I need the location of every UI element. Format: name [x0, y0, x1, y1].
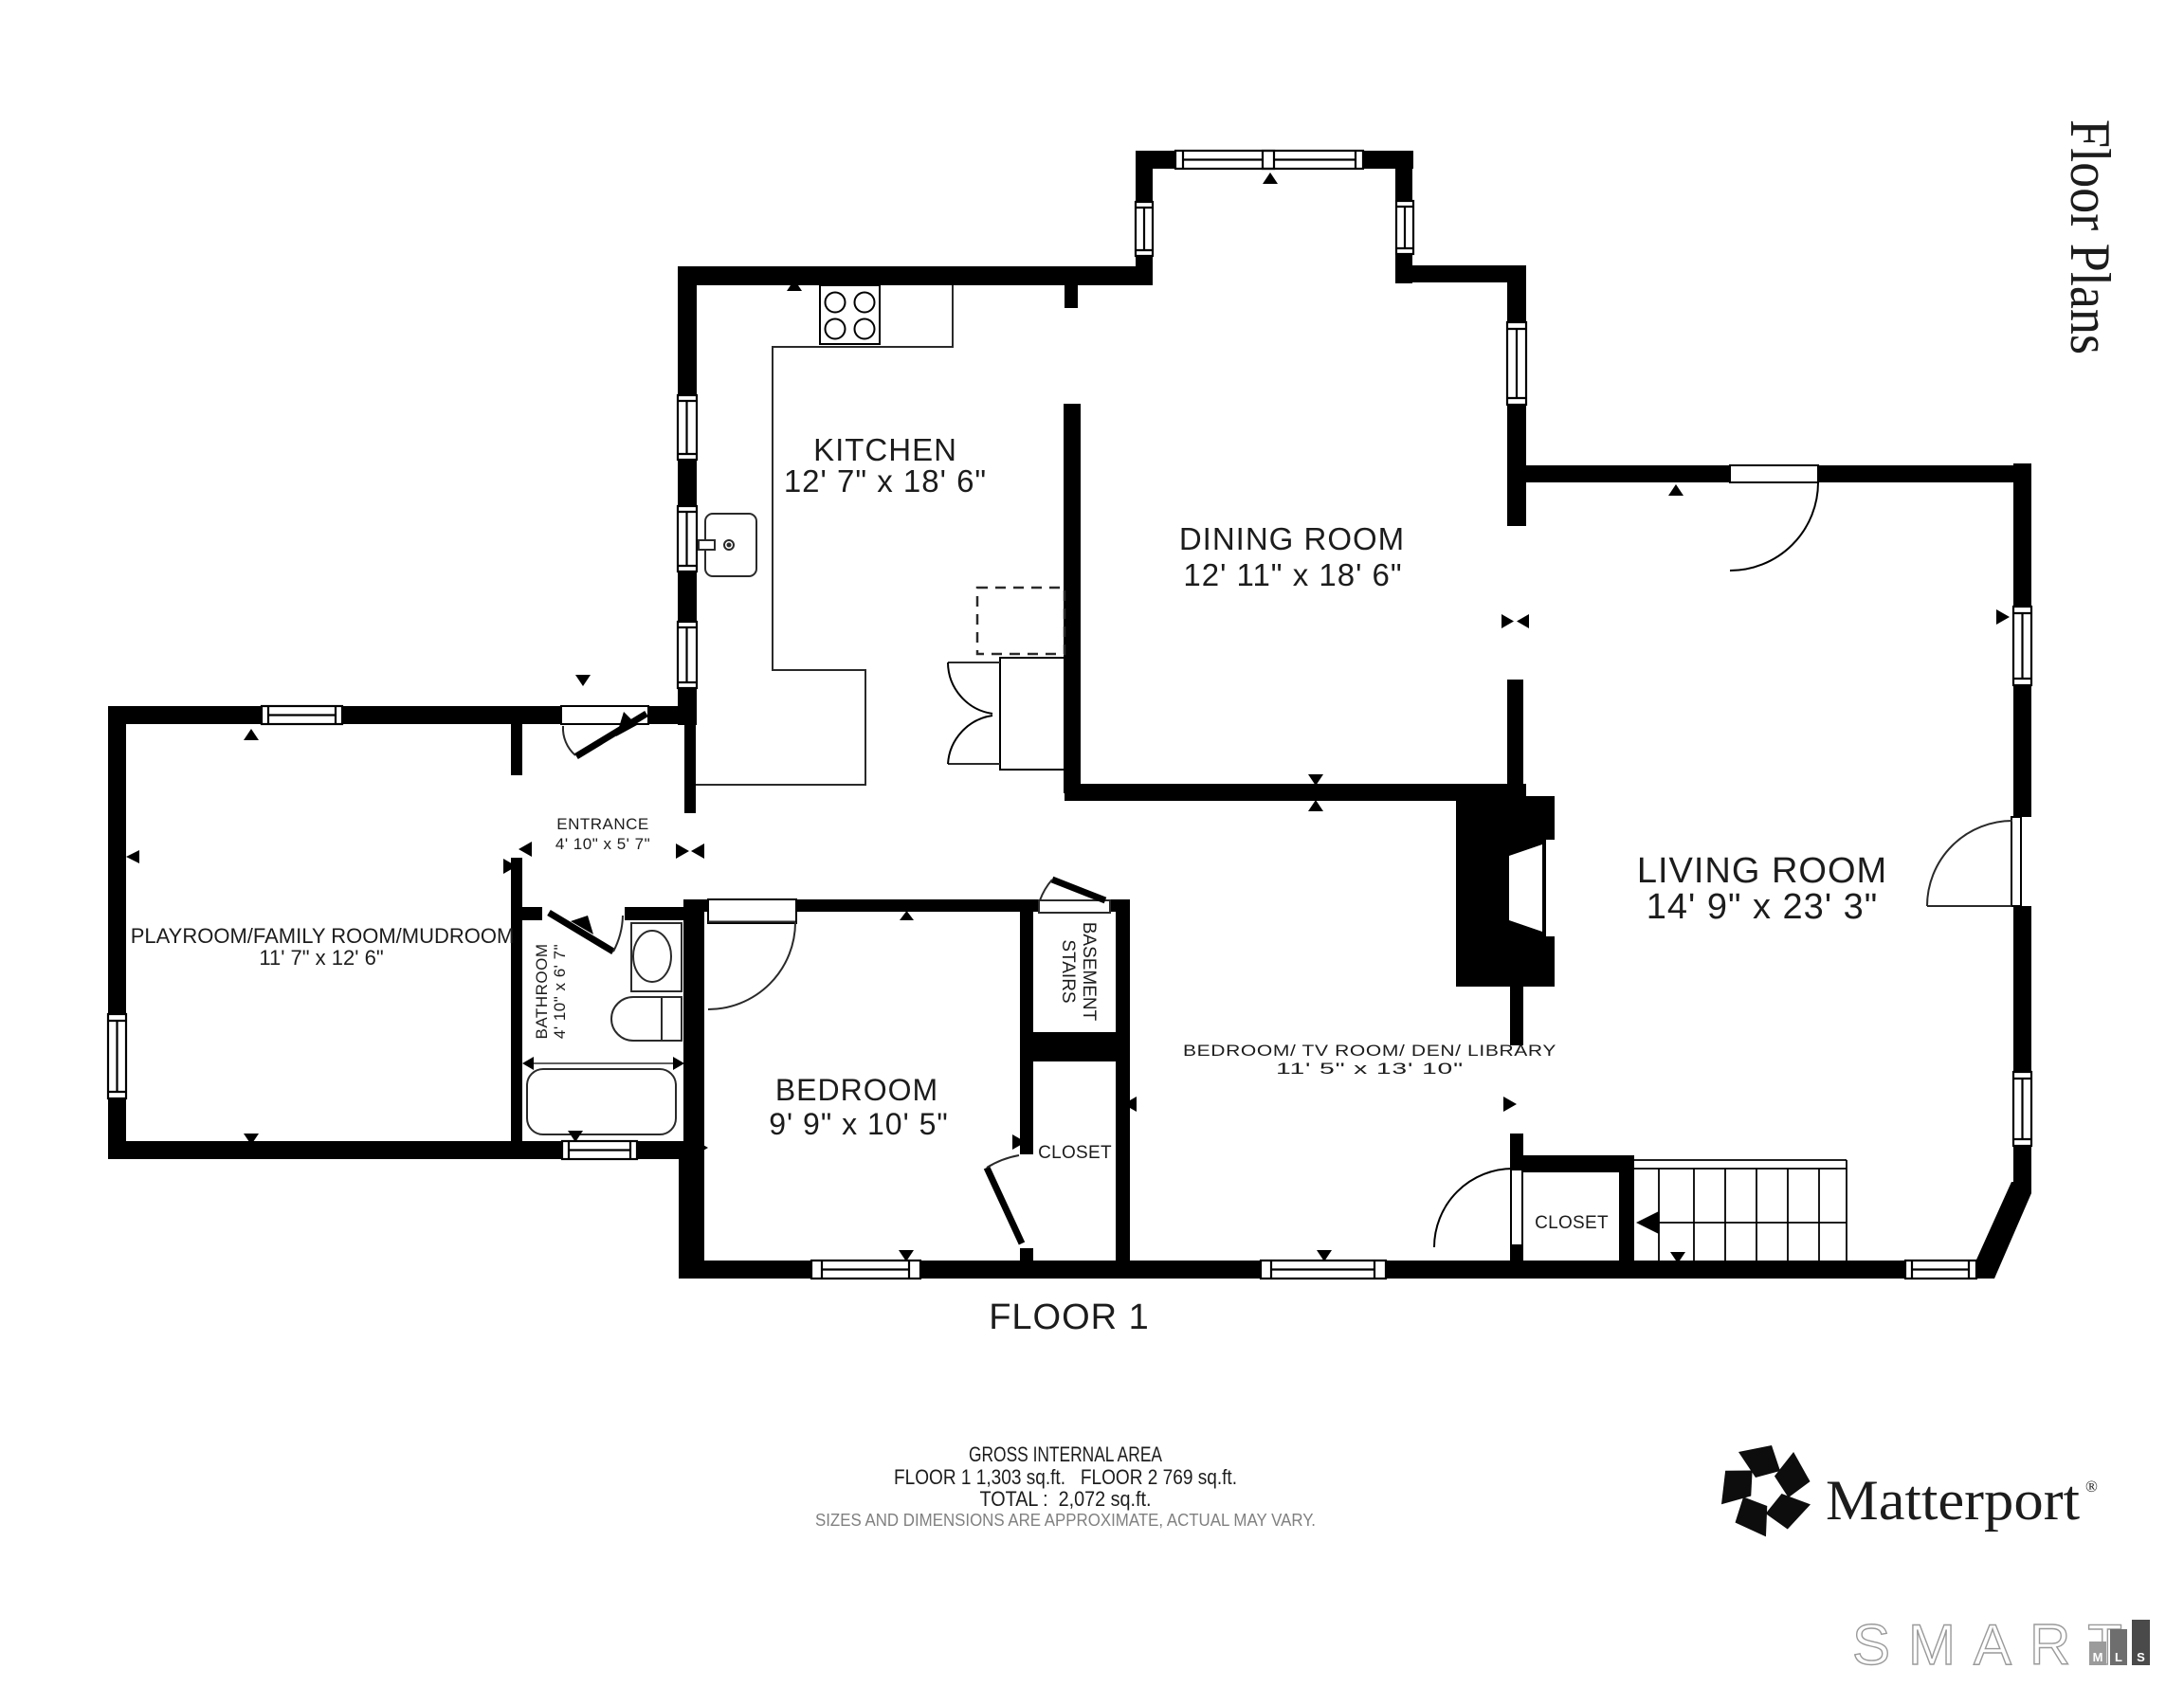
- svg-text:M: M: [2093, 1650, 2103, 1664]
- svg-text:9' 9" x 10' 5": 9' 9" x 10' 5": [769, 1107, 948, 1141]
- svg-text:4' 10" x 5' 7": 4' 10" x 5' 7": [555, 835, 650, 853]
- svg-text:®: ®: [2085, 1478, 2098, 1496]
- svg-text:BEDROOM/ TV ROOM/ DEN/ LIBRARY: BEDROOM/ TV ROOM/ DEN/ LIBRARY: [1183, 1042, 1556, 1060]
- svg-text:12' 7" x 18' 6": 12' 7" x 18' 6": [784, 463, 987, 499]
- svg-text:FLOOR 1 1,303 sq.ft. FLOOR 2: FLOOR 1 1,303 sq.ft. FLOOR 2 769 sq.ft.: [894, 1465, 1237, 1489]
- svg-text:FLOOR 1: FLOOR 1: [989, 1297, 1150, 1337]
- svg-text:S: S: [2137, 1650, 2145, 1664]
- svg-text:Floor Plans: Floor Plans: [2059, 119, 2121, 354]
- svg-text:ENTRANCE: ENTRANCE: [556, 815, 649, 833]
- svg-text:DINING ROOM: DINING ROOM: [1179, 521, 1405, 556]
- svg-text:CLOSET: CLOSET: [1535, 1213, 1609, 1233]
- svg-text:12' 11" x 18' 6": 12' 11" x 18' 6": [1183, 557, 1402, 592]
- svg-text:CLOSET: CLOSET: [1038, 1143, 1112, 1163]
- svg-text:KITCHEN: KITCHEN: [813, 432, 957, 467]
- svg-text:Matterport: Matterport: [1826, 1469, 2080, 1532]
- svg-text:PLAYROOM/FAMILY ROOM/MUDROOM: PLAYROOM/FAMILY ROOM/MUDROOM: [131, 924, 515, 948]
- svg-text:11' 7" x 12' 6": 11' 7" x 12' 6": [259, 946, 383, 970]
- svg-text:14' 9" x 23' 3": 14' 9" x 23' 3": [1647, 887, 1879, 927]
- svg-text:SIZES AND DIMENSIONS ARE APPRO: SIZES AND DIMENSIONS ARE APPROXIMATE, AC…: [815, 1510, 1316, 1530]
- svg-text:11' 5" x 13' 10": 11' 5" x 13' 10": [1276, 1060, 1464, 1078]
- svg-text:LIVING ROOM: LIVING ROOM: [1637, 851, 1887, 891]
- svg-text:BEDROOM: BEDROOM: [775, 1073, 938, 1107]
- svg-text:4' 10" x 6' 7": 4' 10" x 6' 7": [551, 944, 569, 1039]
- svg-text:BATHROOM: BATHROOM: [533, 944, 551, 1040]
- svg-text:TOTAL : 2,072 sq.ft.: TOTAL : 2,072 sq.ft.: [980, 1487, 1152, 1511]
- svg-text:L: L: [2115, 1650, 2122, 1664]
- svg-text:BASEMENT: BASEMENT: [1079, 922, 1099, 1022]
- svg-text:STAIRS: STAIRS: [1058, 939, 1078, 1003]
- svg-text:GROSS INTERNAL AREA: GROSS INTERNAL AREA: [969, 1442, 1162, 1466]
